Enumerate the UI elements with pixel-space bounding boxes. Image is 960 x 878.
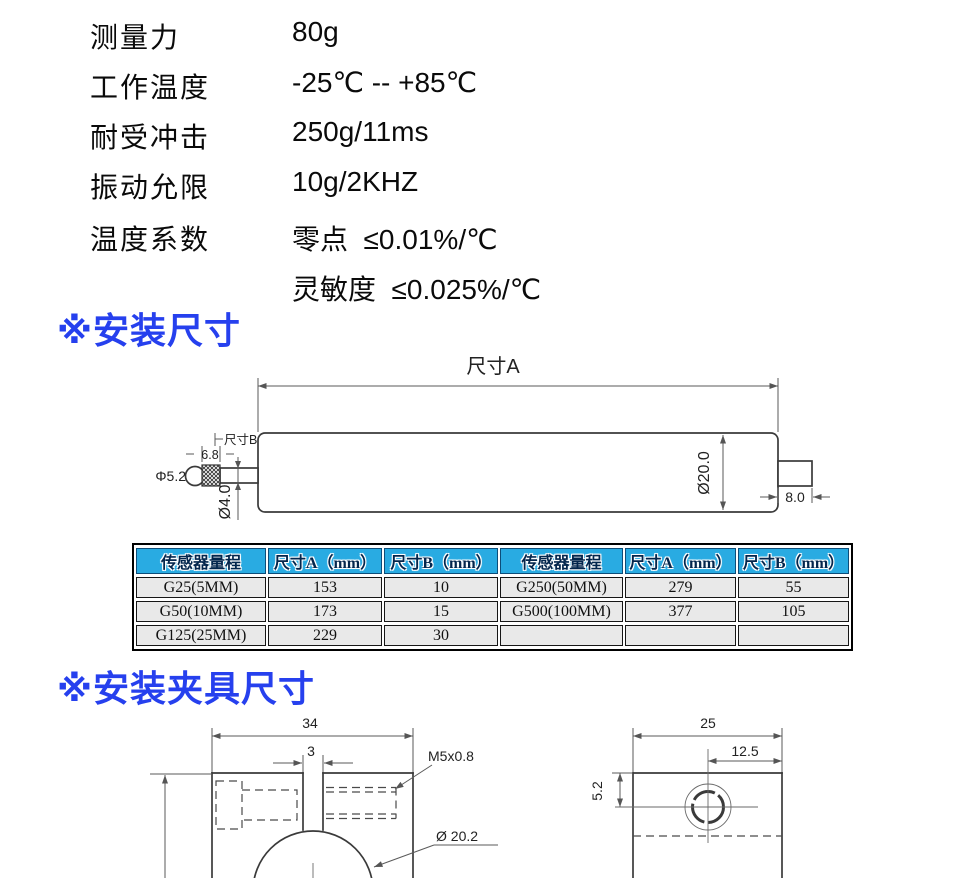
spec-value: 零点 ≤0.01%/℃ — [292, 218, 498, 258]
size-table-header-cell: 尺寸B（mm） — [738, 548, 849, 574]
spec-row: 温度系数 零点 ≤0.01%/℃ — [0, 218, 900, 252]
size-table-header-cell: 尺寸B（mm） — [384, 548, 498, 574]
spec-value: -25℃ -- +85℃ — [292, 66, 477, 99]
spec-value: 灵敏度 ≤0.025%/℃ — [292, 268, 541, 308]
spec-row: 工作温度 -25℃ -- +85℃ — [0, 66, 900, 100]
bore-callout: Ø 20.2 — [374, 828, 498, 867]
size-table-cell: 10 — [384, 577, 498, 598]
edge-offset-dimension: 5.2 — [589, 773, 633, 807]
size-table-cell: 105 — [738, 601, 849, 622]
size-table-cell: 173 — [268, 601, 382, 622]
fixture-drawing-side: 25 12.5 5.2 — [580, 703, 960, 878]
size-table-cell: G50(10MM) — [136, 601, 266, 622]
size-table-row: G50(10MM) 173 15 G500(100MM) 377 105 — [136, 601, 849, 622]
size-table: 传感器量程 尺寸A（mm） 尺寸B（mm） 传感器量程 尺寸A（mm） 尺寸B（… — [132, 543, 853, 651]
height-dimension — [150, 774, 212, 878]
size-table-cell: 30 — [384, 625, 498, 646]
thread-callout: M5x0.8 — [395, 748, 474, 789]
spec-row: 测量力 80g — [0, 16, 900, 50]
size-table-cell: G25(5MM) — [136, 577, 266, 598]
plate-width-label: 25 — [700, 715, 716, 731]
thread-label: M5x0.8 — [428, 748, 474, 764]
shaft-diameter-dimension: Ø4.0 — [217, 457, 241, 520]
hole-offset-label: 12.5 — [731, 743, 758, 759]
size-table-header-cell: 传感器量程 — [136, 548, 266, 574]
spec-row: 振动允限 10g/2KHZ — [0, 166, 900, 200]
size-table-cell: 55 — [738, 577, 849, 598]
size-table-cell: G250(50MM) — [500, 577, 623, 598]
size-table-row: G125(25MM) 229 30 — [136, 625, 849, 646]
tip-diameter-label: Φ5.2 — [155, 468, 186, 484]
size-table-cell: 153 — [268, 577, 382, 598]
size-table-cell — [500, 625, 623, 646]
threaded-hole — [615, 749, 758, 843]
plate-outline — [633, 773, 782, 878]
spec-value: 250g/11ms — [292, 116, 428, 148]
size-table-cell: 279 — [625, 577, 736, 598]
slot-width-dimension: 3 — [273, 743, 353, 773]
dim-a-label: 尺寸A — [466, 355, 520, 378]
spec-label: 温度系数 — [90, 218, 210, 258]
size-table-cell: 377 — [625, 601, 736, 622]
size-table-cell: 15 — [384, 601, 498, 622]
spec-label: 振动允限 — [90, 166, 210, 206]
size-table-row: G25(5MM) 153 10 G250(50MM) 279 55 — [136, 577, 849, 598]
knurl-length-label: 6.8 — [201, 448, 218, 462]
spec-value: 80g — [292, 16, 339, 48]
datasheet-page: 测量力 80g 工作温度 -25℃ -- +85℃ 耐受冲击 250g/11ms… — [0, 0, 960, 878]
spec-label: 测量力 — [90, 16, 180, 56]
body-diameter-label: Ø20.0 — [696, 451, 713, 495]
size-table-header-cell: 尺寸A（mm） — [625, 548, 736, 574]
slot-width-label: 3 — [307, 743, 315, 759]
shaft-diameter-label: Ø4.0 — [217, 485, 234, 520]
dim-a-dimension: 尺寸A — [258, 355, 778, 432]
edge-offset-label: 5.2 — [589, 781, 605, 801]
hidden-holes — [216, 781, 396, 829]
spec-value: 10g/2KHZ — [292, 166, 418, 198]
size-table-header-cell: 传感器量程 — [500, 548, 623, 574]
sensor-body-outline — [186, 433, 813, 512]
size-table-cell — [738, 625, 849, 646]
spec-label: 耐受冲击 — [90, 116, 210, 156]
bore-diameter-label: Ø 20.2 — [436, 828, 478, 844]
stub-length-label: 8.0 — [785, 489, 805, 505]
hole-offset-dimension: 12.5 — [708, 743, 782, 761]
spec-label: 工作温度 — [90, 66, 210, 106]
dim-b-dimension: 尺寸B — [215, 433, 257, 447]
spec-row: 灵敏度 ≤0.025%/℃ — [0, 268, 900, 302]
plate-width-dimension: 25 — [633, 715, 782, 773]
fixture-drawing-front: 34 3 — [140, 703, 560, 878]
size-table-cell: G500(100MM) — [500, 601, 623, 622]
heading-install-dimensions: ※安装尺寸 — [57, 302, 241, 354]
sensor-dimension-drawing: 尺寸A 尺寸B 6.8 Φ5.2 Ø4 — [130, 350, 960, 542]
size-table-cell: 229 — [268, 625, 382, 646]
size-table-cell — [625, 625, 736, 646]
size-table-header-row: 传感器量程 尺寸A（mm） 尺寸B（mm） 传感器量程 尺寸A（mm） 尺寸B（… — [136, 548, 849, 574]
fixture-width-label: 34 — [302, 715, 318, 731]
knurl-length-dimension: 6.8 — [186, 446, 234, 462]
size-table-cell: G125(25MM) — [136, 625, 266, 646]
spec-row: 耐受冲击 250g/11ms — [0, 116, 900, 150]
dim-b-label: 尺寸B — [224, 433, 257, 447]
size-table-header-cell: 尺寸A（mm） — [268, 548, 382, 574]
